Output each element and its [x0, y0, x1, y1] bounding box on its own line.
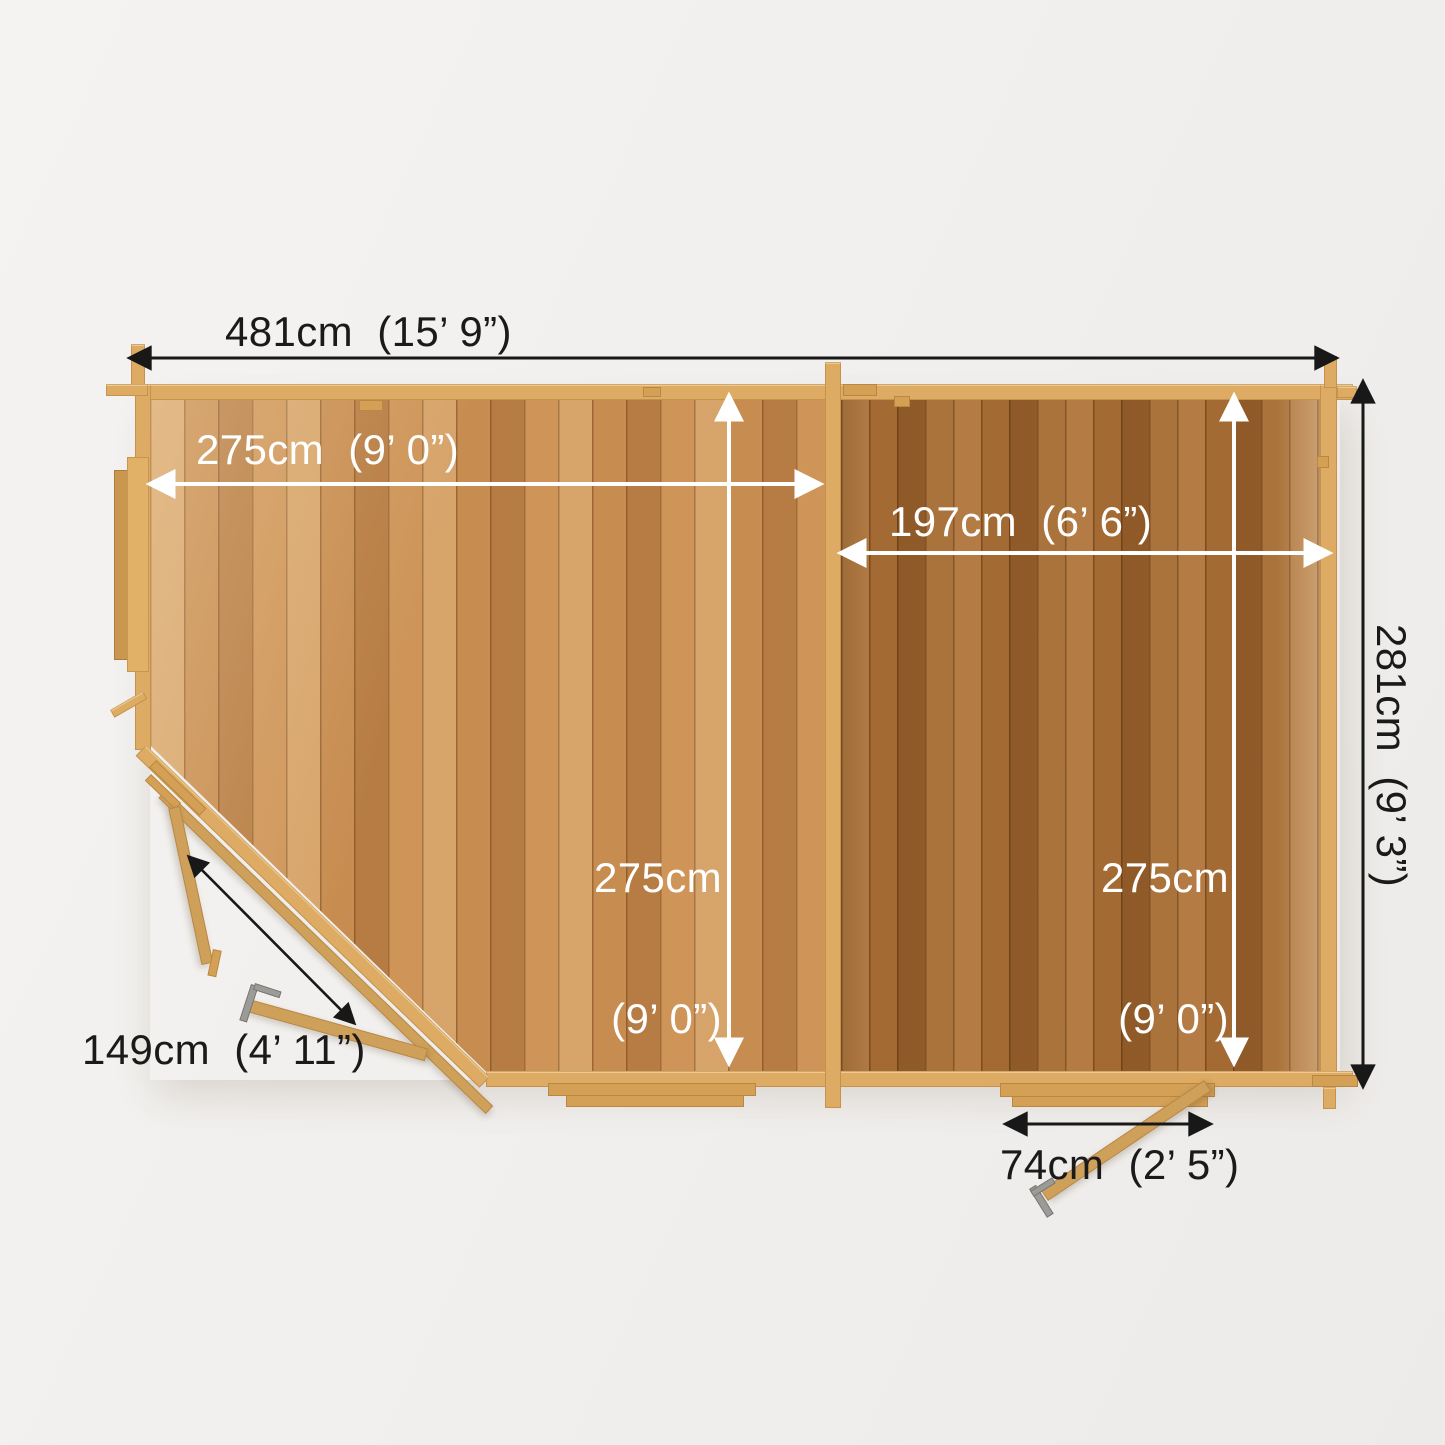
side-window-frame — [127, 457, 149, 672]
bottom-right-corner-log — [1323, 1087, 1336, 1109]
main-room-depth-ft: (9’ 0”) — [522, 995, 722, 1042]
overall-depth-label: 281cm (9’ 3”) — [1368, 624, 1415, 887]
bottom-right-corner-log — [1312, 1075, 1358, 1087]
top-right-corner-log — [1337, 386, 1357, 398]
wall-log-tab — [359, 400, 383, 411]
side-room-width-label: 197cm (6’ 6”) — [889, 498, 1152, 545]
wall-log-tab — [1317, 456, 1329, 468]
main-room-depth-cm: 275cm — [522, 854, 722, 901]
top-wall — [135, 384, 1353, 400]
partition-log-tab — [894, 396, 910, 407]
top-right-corner-log — [1324, 356, 1337, 388]
partition-top-joint — [843, 384, 877, 396]
main-room-depth-label: 275cm (9’ 0”) — [522, 760, 722, 1136]
side-room-depth-cm: 275cm — [1029, 854, 1229, 901]
side-door-width-label: 74cm (2’ 5”) — [1000, 1141, 1239, 1188]
floorplan-diagram: 481cm (15’ 9”) 275cm (9’ 0”) 197cm (6’ 6… — [0, 0, 1445, 1445]
corner-door-width-label: 149cm (4’ 11”) — [82, 1026, 366, 1073]
top-left-corner-log — [131, 344, 145, 388]
side-room-depth-label: 275cm (9’ 0”) — [1029, 760, 1229, 1136]
top-left-corner-log — [106, 384, 148, 396]
right-wall — [1320, 384, 1337, 1087]
overall-width-label: 481cm (15’ 9”) — [225, 308, 512, 355]
main-room-width-label: 275cm (9’ 0”) — [196, 426, 459, 473]
side-room-depth-ft: (9’ 0”) — [1029, 995, 1229, 1042]
partition-wall — [825, 362, 841, 1108]
wall-log-tab — [643, 387, 661, 397]
